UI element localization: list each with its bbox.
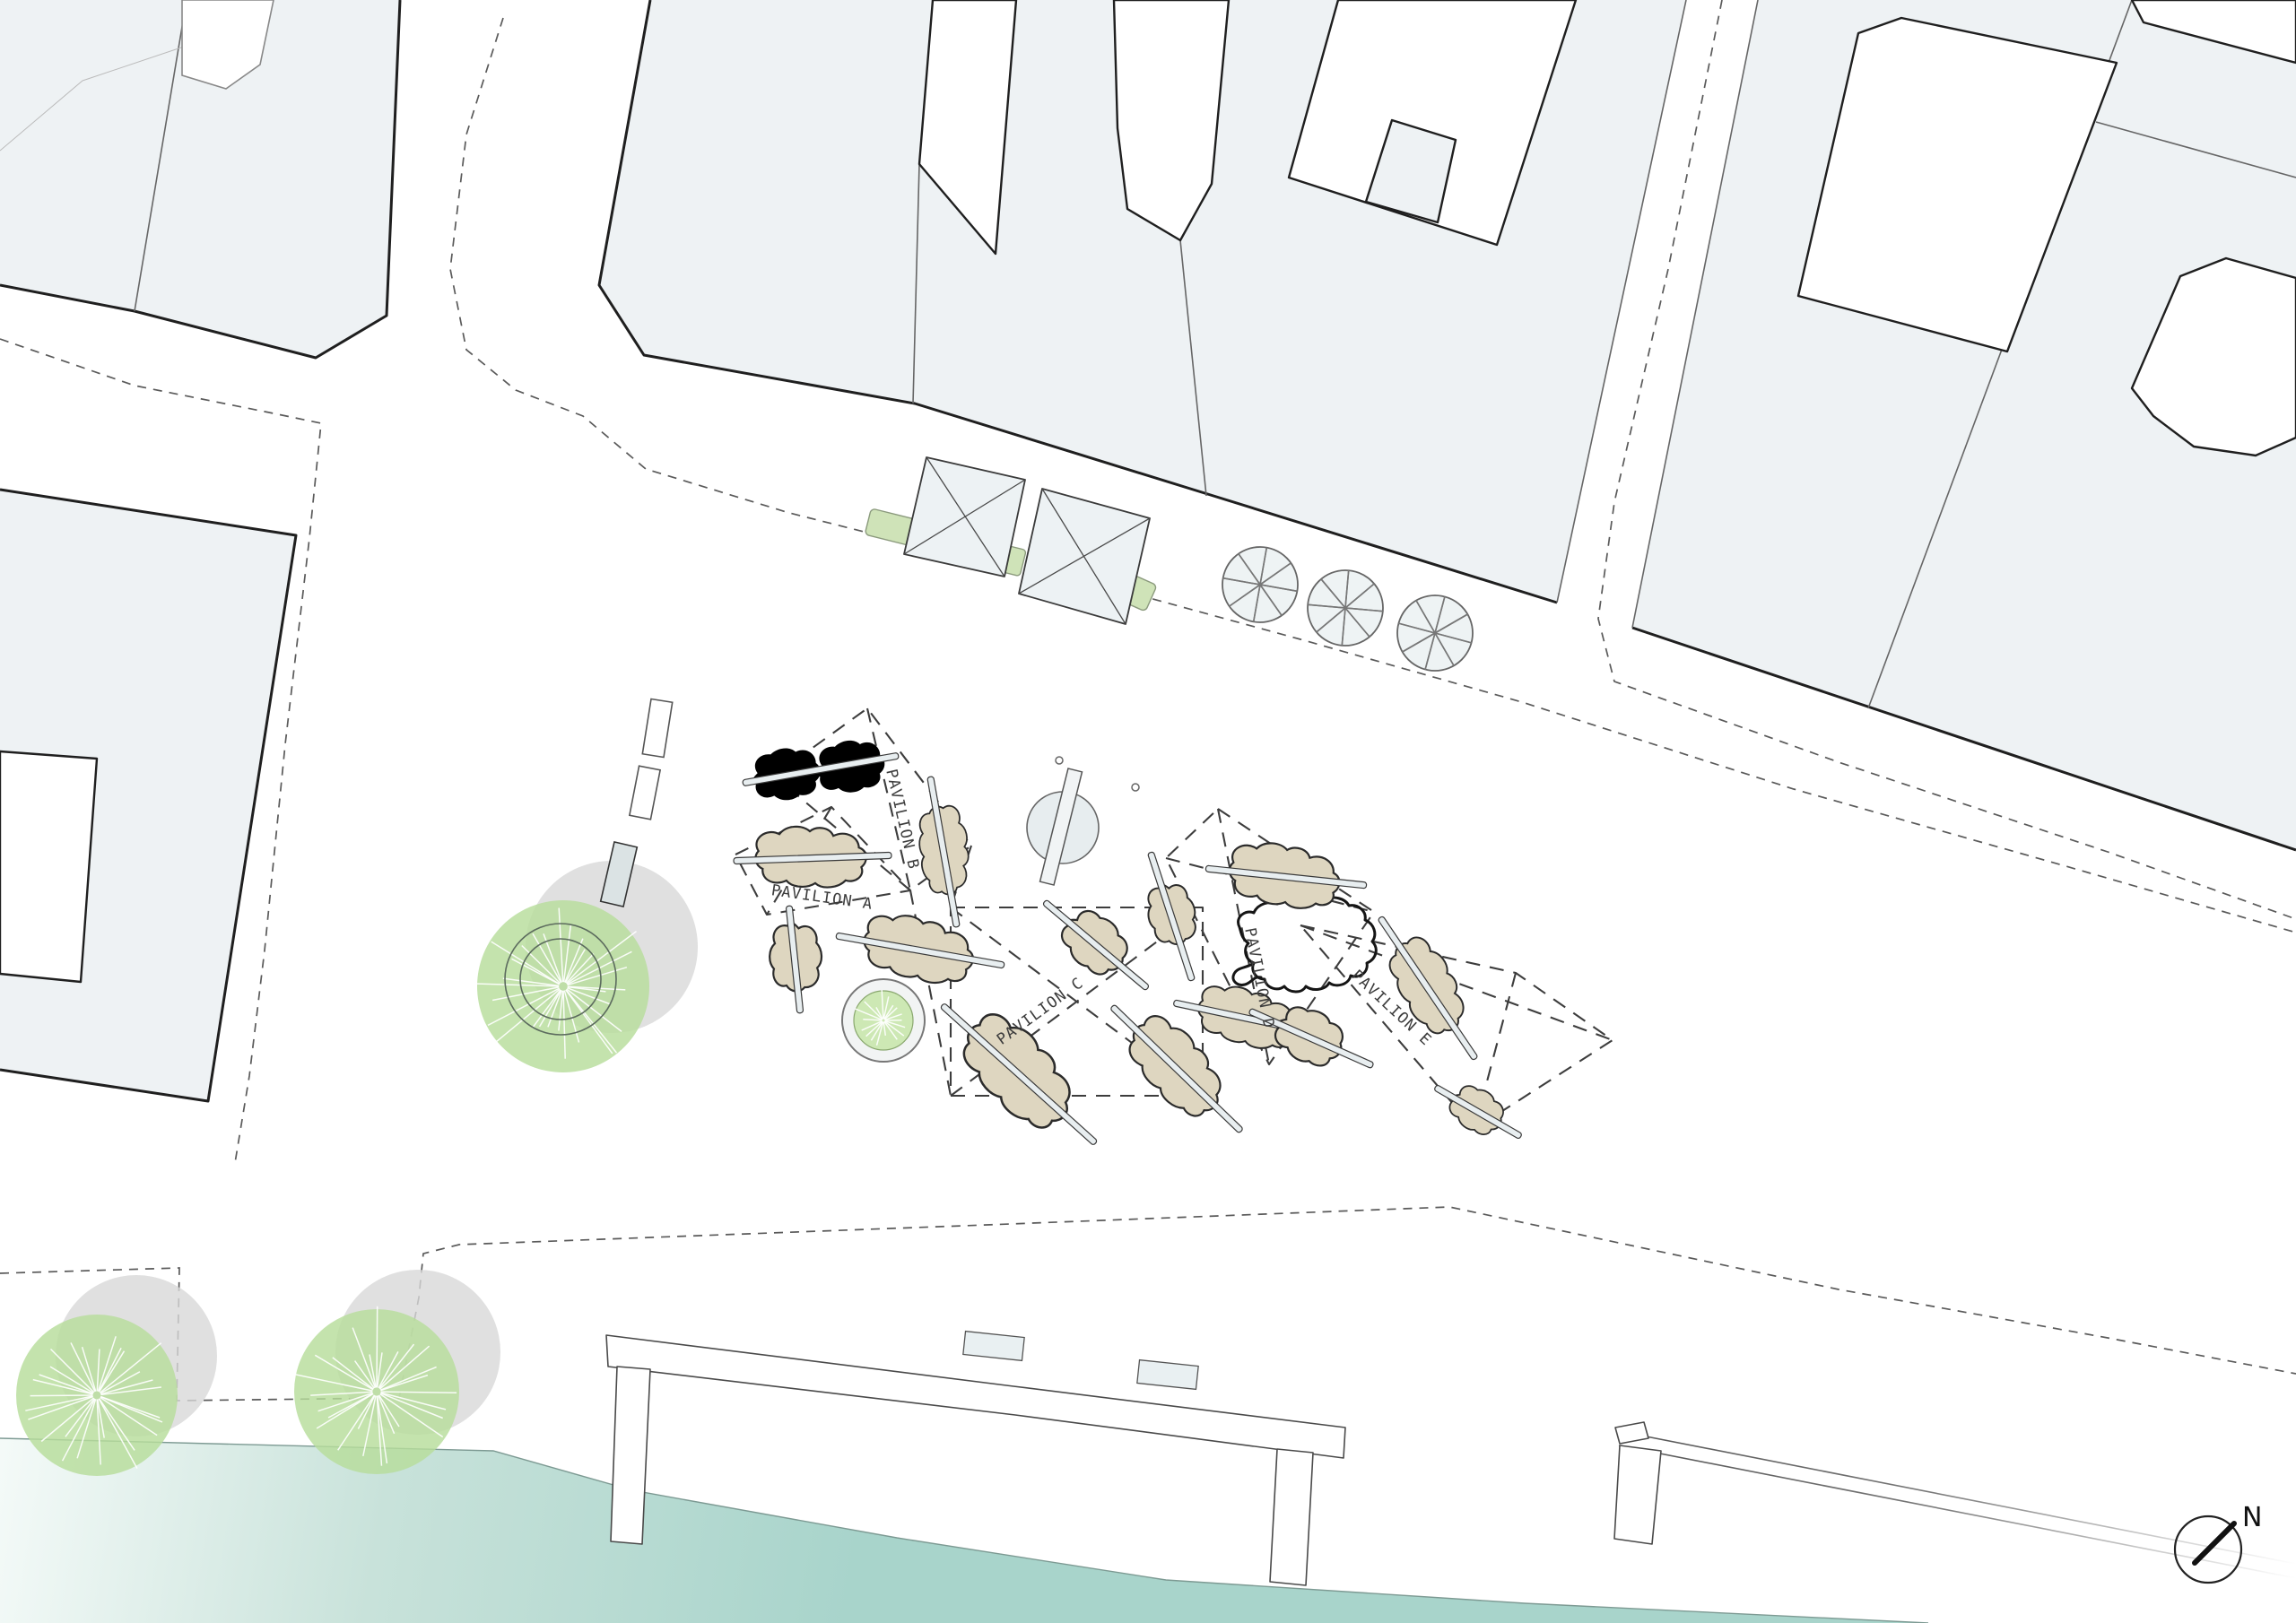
planter-tree [842,979,925,1062]
circular-feature [1027,757,1139,885]
north-label: N [2242,1502,2262,1533]
context-buildings [0,0,2296,1101]
canopy-structure [1019,489,1150,624]
log-bench [919,977,1120,1168]
site-plan-drawing: PAVILION A PAVILION B PAVILION C PAVILIO… [0,0,2296,1623]
log-bench [1425,1069,1531,1154]
courtyard-void [0,751,97,982]
log-bench [831,904,1010,994]
boardwalk-ramp [1270,1449,1313,1585]
canopy-structures [865,457,1157,624]
boardwalk-east [1614,1422,2296,1578]
deck-bench [1137,1360,1198,1390]
log-bench [1203,837,1370,915]
deck-bench [963,1332,1024,1361]
parasol-tree [1308,570,1383,646]
log-bench [1029,881,1165,1008]
boardwalk-deck-fading [1619,1431,2296,1578]
canopy-structure [904,457,1025,577]
parasol-tree [1222,547,1298,622]
pavilion-cluster-benches [733,729,1532,1168]
log-bench [733,823,892,890]
parasol-tree [1397,595,1473,671]
log-bench [764,903,827,1015]
log-bench [1129,845,1215,987]
boardwalk-ramp [1614,1445,1661,1544]
large-tree [474,861,698,1072]
site-plan-page: PAVILION A PAVILION B PAVILION C PAVILIO… [0,0,2296,1623]
pavilion-c-label: PAVILION C [994,974,1087,1048]
